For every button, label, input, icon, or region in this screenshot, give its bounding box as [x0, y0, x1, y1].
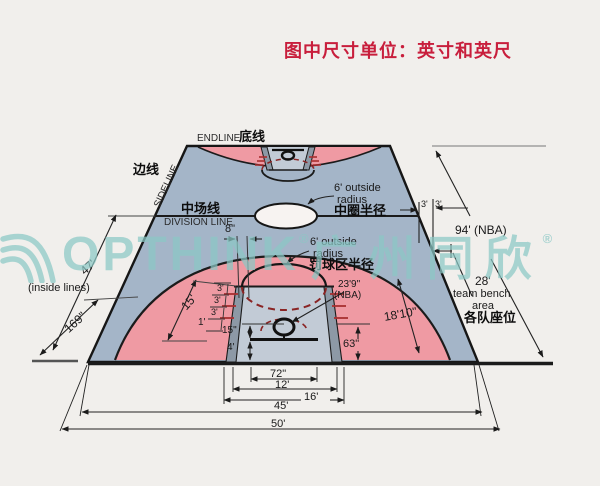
- near-rim: [274, 319, 294, 335]
- dim-15-inch: 15": [222, 326, 237, 336]
- inside-lines-label: (inside lines): [28, 283, 90, 294]
- division-line-label-zh: 中场线: [181, 202, 220, 215]
- center-radius-label-zh: 中圈半径: [334, 204, 386, 217]
- sideline-label-zh: 边线: [133, 163, 159, 176]
- division-line-label-en: DIVISION LINE: [164, 218, 233, 228]
- dim-23ft9-nba-suffix: (NBA): [334, 291, 361, 301]
- ft-radius-line1: 6' outside: [310, 237, 357, 248]
- center-radius-line1: 6' outside: [334, 183, 381, 194]
- dim-12-ft: 12': [275, 380, 289, 391]
- dim-63-inch: 63": [343, 339, 359, 350]
- diagram-title: 图中尺寸单位：英寸和英尺: [284, 37, 512, 63]
- hash-dim-1ft: 1': [198, 318, 205, 328]
- ft-radius-label-zh: 罚球区半径: [309, 258, 374, 271]
- dim-45-ft: 45': [274, 401, 288, 412]
- dim-3ft-b: 3': [435, 200, 442, 209]
- dim-23ft9-nba: 23'9": [338, 280, 360, 290]
- hash-dim-3ft-b: 3': [214, 296, 221, 305]
- dim-8-inch: 8": [225, 224, 235, 235]
- dim-3ft-a: 3': [421, 200, 428, 209]
- dim-94-ft-nba: 94' (NBA): [455, 224, 507, 236]
- bench-label-line1: team bench: [453, 289, 510, 300]
- center-circle: [255, 204, 317, 229]
- bench-label-zh: 各队座位: [464, 311, 516, 324]
- dim-16-ft: 16': [304, 392, 318, 403]
- hash-dim-3ft-c: 3': [211, 308, 218, 317]
- hash-dim-3ft-a: 3': [217, 284, 224, 293]
- dim-50-ft: 50': [271, 419, 285, 430]
- dim-4-ft: 4': [227, 343, 234, 353]
- endline-label-en: ENDLINE: [197, 134, 240, 144]
- dim-28-ft: 28': [475, 275, 491, 287]
- basketball-court-dimension-diagram: 图中尺寸单位：英寸和英尺 ENDLINE 底线 边线 SIDELINE 中场线 …: [0, 0, 600, 486]
- court-diagram-svg: [0, 0, 600, 486]
- endline-label-zh: 底线: [239, 130, 265, 143]
